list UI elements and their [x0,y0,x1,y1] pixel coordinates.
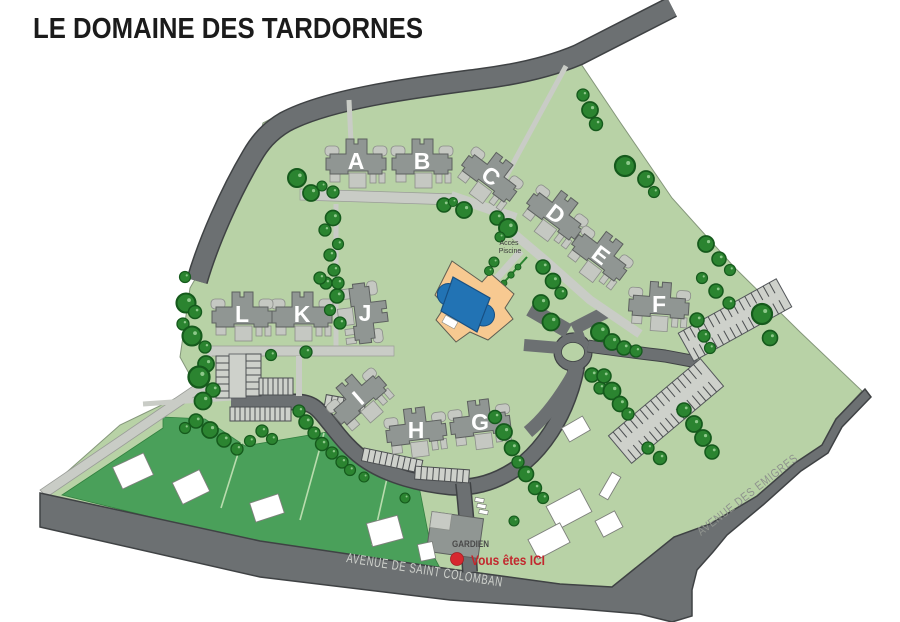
svg-text:LE DOMAINE DES TARDORNES: LE DOMAINE DES TARDORNES [33,13,423,45]
svg-text:H: H [408,417,425,443]
svg-text:L: L [235,301,249,327]
svg-text:Piscine: Piscine [499,248,522,255]
svg-text:GARDIEN: GARDIEN [452,539,489,550]
svg-text:A: A [348,148,365,174]
svg-text:F: F [652,291,666,317]
svg-text:G: G [471,409,489,435]
svg-text:B: B [414,148,431,174]
svg-text:Vous êtes ICI: Vous êtes ICI [471,552,545,568]
svg-text:Accès: Accès [499,240,519,247]
svg-text:J: J [359,300,372,326]
svg-text:K: K [294,301,311,327]
